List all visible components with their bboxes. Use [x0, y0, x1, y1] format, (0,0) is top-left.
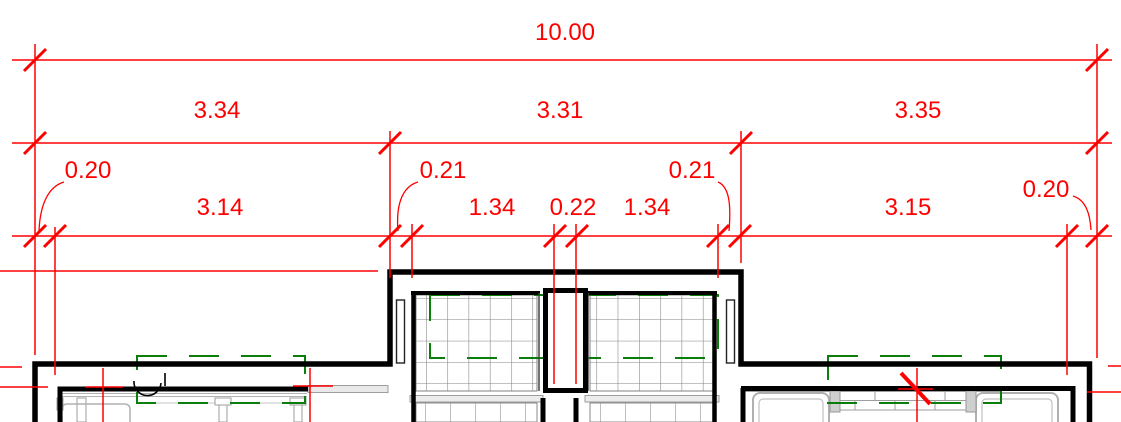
dim-label-opening-1: 3.14 [197, 196, 244, 220]
dim-label-offset-4: 0.20 [1023, 178, 1070, 202]
dim-label-bay-2: 3.31 [537, 99, 584, 123]
wall-outline [35, 272, 1090, 422]
cad-drawing-canvas: 10.00 3.34 3.31 3.35 0.20 0.21 0.21 0.20… [0, 0, 1121, 422]
dim-label-opening-4: 1.34 [624, 196, 671, 220]
dim-label-opening-2: 1.34 [469, 196, 516, 220]
dim-label-bay-1: 3.34 [194, 99, 241, 123]
dim-label-offset-2: 0.21 [420, 159, 467, 183]
dim-label-offset-3: 0.21 [669, 159, 716, 183]
dim-label-total: 10.00 [535, 21, 595, 45]
dim-label-opening-3: 0.22 [550, 196, 597, 220]
dim-label-bay-3: 3.35 [895, 99, 942, 123]
dim-label-opening-5: 3.15 [885, 196, 932, 220]
dim-label-offset-1: 0.20 [65, 159, 112, 183]
